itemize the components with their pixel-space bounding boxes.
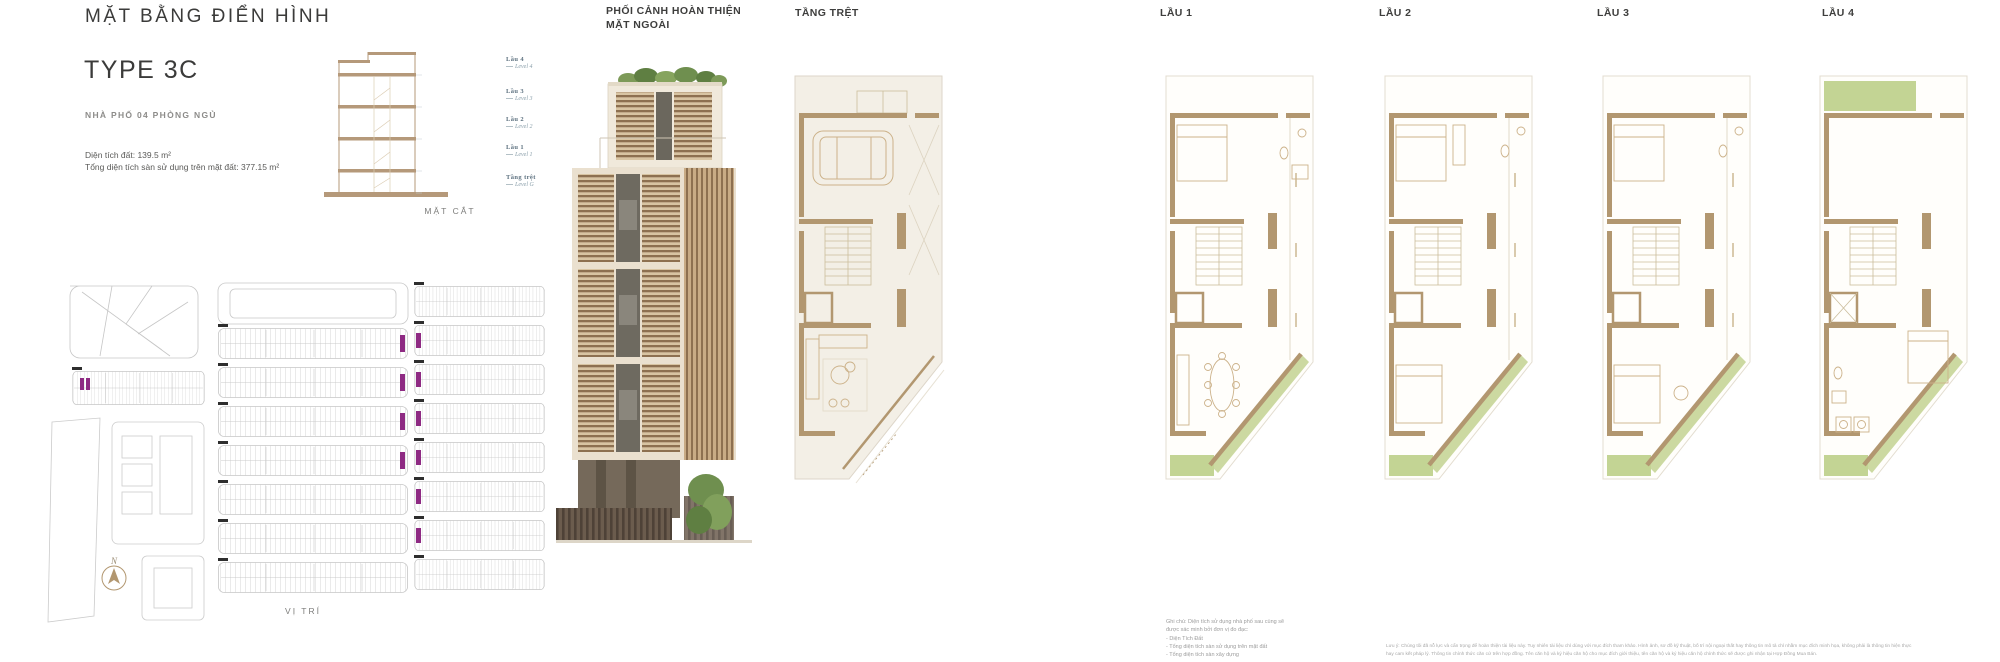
floor-plan-lau-3 <box>1601 73 1753 485</box>
level-name-en-text: Level G <box>515 182 534 188</box>
ground-line <box>556 540 752 543</box>
vertical-slat-screen <box>684 168 734 460</box>
brochure-sheet: MẶT BẰNG ĐIỂN HÌNH TYPE 3C NHÀ PHỐ 04 PH… <box>0 0 2000 662</box>
roof-terrace-green <box>1824 81 1916 111</box>
stair-shaft <box>374 76 390 192</box>
leader-tick <box>506 184 513 185</box>
note-item: - Tổng diện tích sàn sử dụng trên mặt đấ… <box>1166 643 1351 651</box>
section-drawing <box>322 30 452 202</box>
note-intro: Ghi chú: Diện tích sử dụng nhà phố sau c… <box>1166 618 1351 635</box>
site-lot-rows-right <box>414 286 544 589</box>
floor-plan-lau-1 <box>1164 73 1316 485</box>
site-block-curved <box>70 286 198 358</box>
penthouse-level <box>600 82 726 168</box>
floor-plan-tang-tret <box>793 73 945 485</box>
notes-ghi-chu: Ghi chú: Diện tích sử dụng nhà phố sau c… <box>1166 618 1351 659</box>
plan-header-lau-2: LẦU 2 <box>1379 7 1411 21</box>
floor-area-text: Tổng diện tích sàn sử dụng trên mặt đất:… <box>85 162 279 172</box>
site-block-park <box>218 283 408 324</box>
level-name-en-text: Level 4 <box>515 64 533 70</box>
site-blocks-bottom-left <box>48 418 204 622</box>
site-lot-row-left <box>72 372 204 405</box>
leader-tick <box>506 154 513 155</box>
type-label: TYPE 3C <box>84 56 199 85</box>
leader-tick <box>506 126 513 127</box>
plan-header-lau-4: LẦU 4 <box>1822 7 1854 21</box>
page-title: MẶT BẰNG ĐIỂN HÌNH <box>85 6 331 28</box>
site-lot-rows-center <box>219 328 408 592</box>
plan-header-lau-1: LẦU 1 <box>1160 7 1192 21</box>
render-caption: PHỐI CẢNH HOÀN THIỆN MẶT NGOÀI <box>606 5 756 32</box>
floor-plan-lau-2 <box>1383 73 1535 485</box>
leader-tick <box>506 98 513 99</box>
level-name-en-text: Level 3 <box>515 96 533 102</box>
note-item: - Tổng diện tích sàn xây dựng <box>1166 651 1351 659</box>
leader-tick <box>506 66 513 67</box>
level-name-en-text: Level 1 <box>515 152 533 158</box>
site-caption: VỊ TRÍ <box>268 606 338 616</box>
bedrooms-subtitle: NHÀ PHỐ 04 PHÒNG NGỦ <box>85 110 217 120</box>
north-compass-icon: N <box>102 556 126 590</box>
plan-header-lau-3: LẦU 3 <box>1597 7 1629 21</box>
note-item: - Diện Tích Đất <box>1166 635 1351 643</box>
land-area-text: Diện tích đất: 139.5 m² <box>85 150 171 160</box>
floor-plan-lau-4 <box>1818 73 1970 485</box>
exterior-render <box>556 50 752 544</box>
louver-floors <box>578 174 680 452</box>
plan-header-tang-tret: TẦNG TRỆT <box>795 7 859 21</box>
site-plan: N <box>42 272 547 624</box>
disclaimer-text: Lưu ý: Chúng tôi đã nỗ lực và cẩn trọng … <box>1386 643 1918 659</box>
level-name-en-text: Level 2 <box>515 124 533 130</box>
compass-n-label: N <box>110 556 118 566</box>
section-caption: MẶT CẮT <box>390 206 510 216</box>
